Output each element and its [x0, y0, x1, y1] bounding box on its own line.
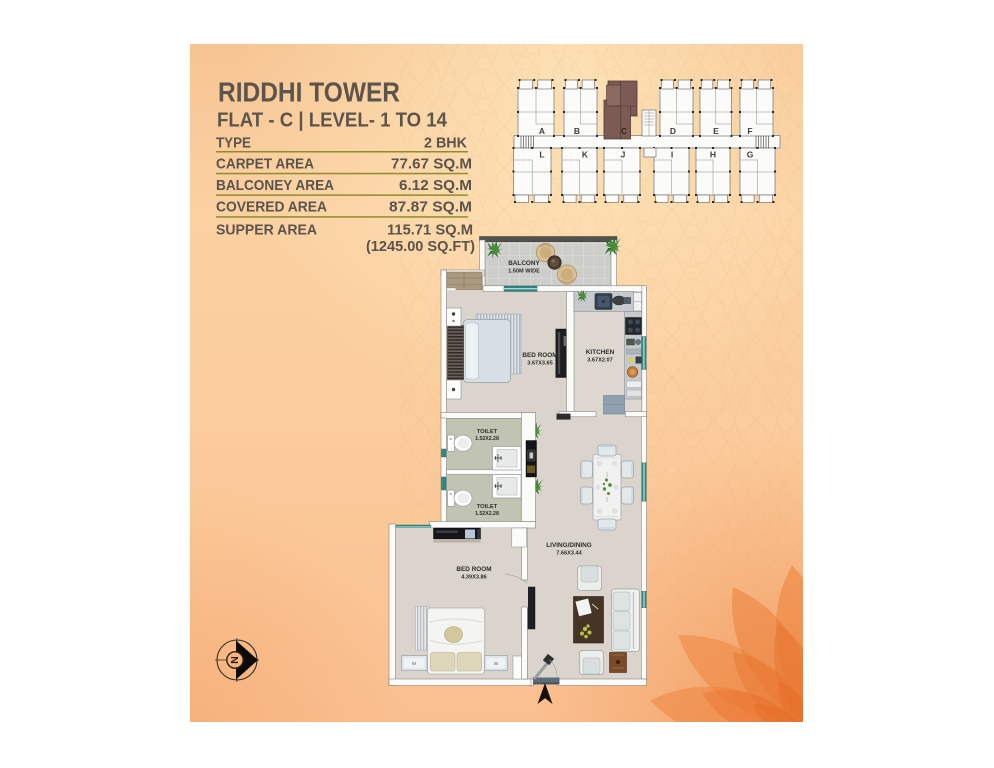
svg-text:KITCHEN: KITCHEN — [586, 349, 615, 356]
svg-text:M: M — [412, 661, 416, 666]
svg-text:TOILET: TOILET — [477, 504, 498, 510]
svg-text:87.87 SQ.M: 87.87 SQ.M — [389, 200, 472, 216]
svg-text:TOILET: TOILET — [477, 429, 498, 435]
svg-text:FLAT - C | LEVEL- 1 TO 14: FLAT - C | LEVEL- 1 TO 14 — [217, 109, 448, 132]
svg-text:3.67X2.07: 3.67X2.07 — [587, 358, 613, 364]
svg-text:1.50M WIDE: 1.50M WIDE — [508, 269, 540, 275]
svg-text:L: L — [539, 150, 544, 160]
svg-text:6.12 SQ.M: 6.12 SQ.M — [399, 178, 472, 194]
svg-text:M: M — [494, 661, 498, 666]
svg-text:BALCONEY AREA: BALCONEY AREA — [216, 178, 334, 194]
svg-text:A: A — [539, 126, 545, 136]
svg-text:2 BHK: 2 BHK — [424, 135, 467, 151]
svg-text:1.52X2.28: 1.52X2.28 — [475, 436, 499, 442]
svg-text:LIVING/DINING: LIVING/DINING — [546, 542, 591, 549]
svg-text:F: F — [747, 126, 752, 136]
svg-text:RIDDHI TOWER: RIDDHI TOWER — [218, 77, 400, 108]
svg-text:C: C — [621, 126, 627, 136]
svg-text:77.67 SQ.M: 77.67 SQ.M — [391, 156, 472, 172]
svg-text:7.66X3.44: 7.66X3.44 — [556, 551, 582, 557]
svg-text:(1245.00 SQ.FT): (1245.00 SQ.FT) — [366, 239, 475, 255]
svg-text:BED ROOM: BED ROOM — [522, 352, 557, 359]
svg-text:BALCONY: BALCONY — [508, 260, 540, 267]
svg-text:D: D — [670, 126, 676, 136]
svg-text:TYPE: TYPE — [216, 135, 251, 151]
svg-text:1.52X2.28: 1.52X2.28 — [475, 511, 499, 517]
svg-text:115.71 SQ.M: 115.71 SQ.M — [387, 222, 473, 238]
svg-text:3.67X3.65: 3.67X3.65 — [527, 361, 553, 367]
svg-text:B: B — [574, 126, 580, 136]
svg-text:COVERED AREA: COVERED AREA — [216, 200, 327, 216]
svg-text:G: G — [747, 150, 754, 160]
svg-text:CARPET AREA: CARPET AREA — [216, 156, 314, 172]
svg-text:BED ROOM: BED ROOM — [456, 566, 491, 573]
svg-text:H: H — [710, 150, 716, 160]
svg-text:I: I — [671, 150, 673, 160]
svg-text:SUPPER AREA: SUPPER AREA — [216, 222, 317, 238]
svg-text:N: N — [228, 656, 240, 664]
svg-text:J: J — [621, 150, 626, 160]
svg-text:4.39X3.86: 4.39X3.86 — [461, 575, 487, 581]
svg-text:E: E — [713, 126, 719, 136]
svg-text:K: K — [582, 150, 589, 160]
